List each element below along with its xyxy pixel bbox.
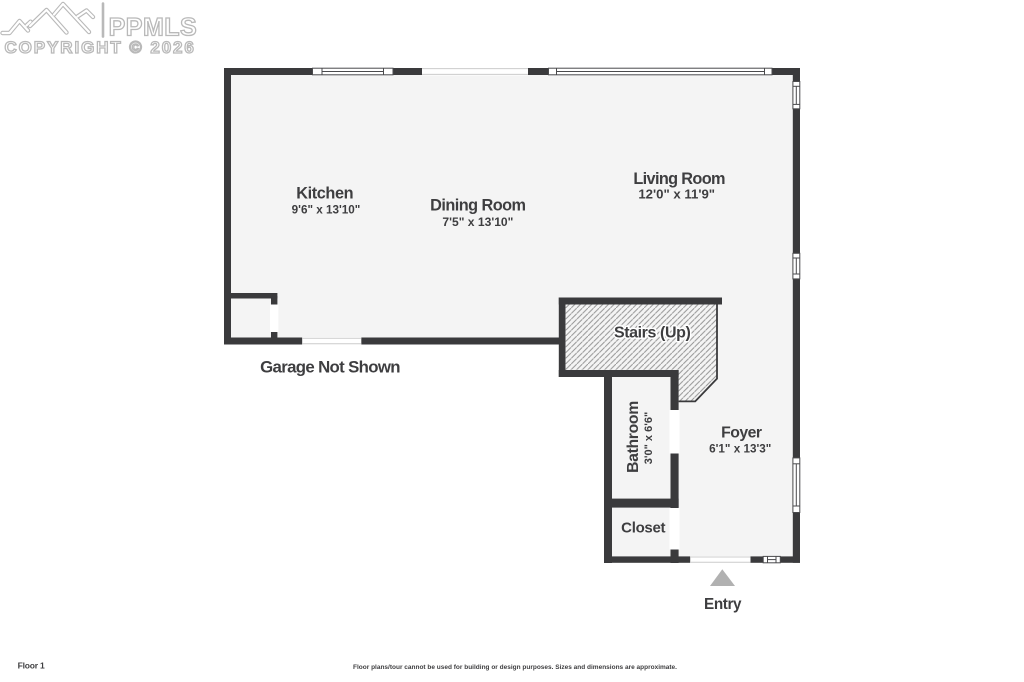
svg-text:Floor 1: Floor 1 [18,660,45,670]
svg-text:Living Room: Living Room [633,170,725,188]
svg-text:7'5" x 13'10": 7'5" x 13'10" [442,215,513,229]
svg-text:COPYRIGHT © 2026: COPYRIGHT © 2026 [5,38,196,57]
svg-text:9'6" x 13'10": 9'6" x 13'10" [292,204,361,217]
svg-text:Closet: Closet [621,520,665,537]
svg-text:Kitchen: Kitchen [296,185,353,203]
svg-text:12'0" x 11'9": 12'0" x 11'9" [638,186,715,201]
svg-text:Stairs (Up): Stairs (Up) [614,325,691,342]
svg-text:Floor plans/tour cannot be use: Floor plans/tour cannot be used for buil… [353,664,677,671]
svg-text:6'1" x 13'3": 6'1" x 13'3" [709,443,771,456]
svg-text:Entry: Entry [704,596,742,613]
svg-text:Foyer: Foyer [721,425,762,442]
svg-text:Dining Room: Dining Room [430,197,525,215]
svg-text:Garage Not Shown: Garage Not Shown [260,358,400,377]
svg-text:3'0" x 6'6": 3'0" x 6'6" [643,412,655,464]
svg-text:Bathroom: Bathroom [625,401,642,473]
